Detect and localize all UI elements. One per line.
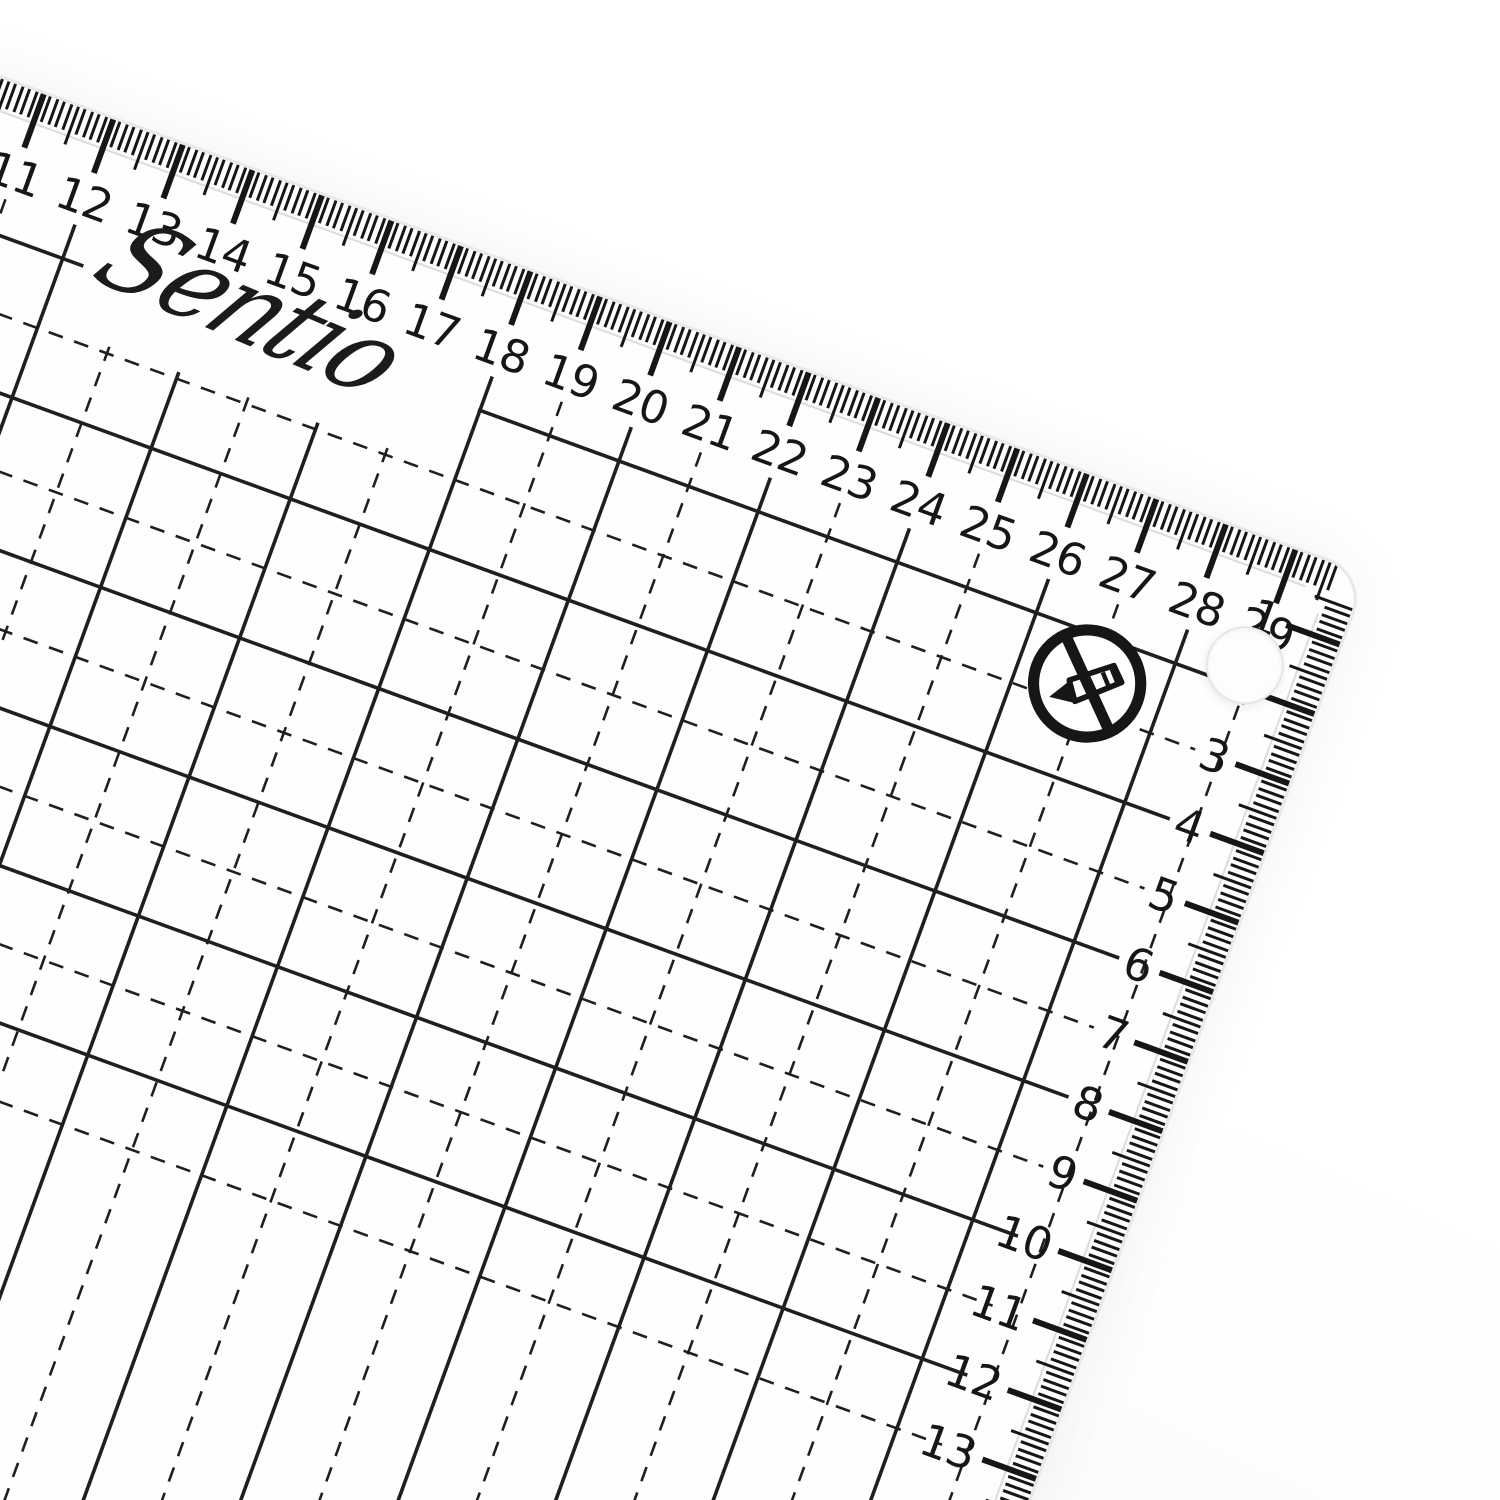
grid-line-vertical (0, 372, 179, 1500)
grid-line-horizontal (0, 589, 967, 1376)
grid-line-horizontal (0, 519, 993, 1306)
grid-line-vertical (228, 503, 840, 1500)
grid-line-vertical (437, 579, 1049, 1500)
grid-line-vertical (298, 528, 910, 1500)
grid-line-vertical (646, 655, 1258, 1500)
grid-line-vertical (0, 347, 109, 1500)
grid-line-horizontal (0, 658, 942, 1445)
cutting-mat: 11121314151617181920212223242526272829 1… (0, 0, 1365, 1500)
grid-line-vertical (0, 448, 387, 1500)
grid-line-vertical (0, 423, 318, 1500)
grid-line-vertical (507, 604, 1119, 1500)
grid-line-horizontal (0, 0, 83, 266)
product-photo: 11121314151617181920212223242526272829 1… (0, 0, 1500, 1500)
grid-line-horizontal (0, 380, 1043, 1167)
grid-line-vertical (89, 452, 701, 1500)
grid-line-vertical (159, 478, 771, 1500)
grid-line-horizontal (0, 32, 1170, 819)
